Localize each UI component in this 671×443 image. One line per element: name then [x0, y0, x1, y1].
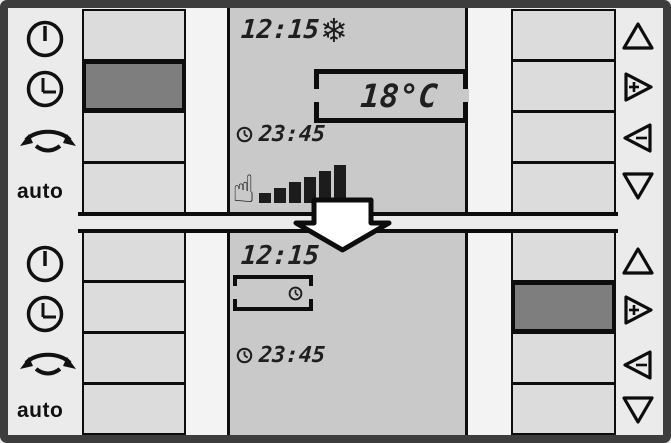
top-display: 12:15 ❄ 18°C 23:45 ☝	[227, 8, 468, 214]
power-icon	[24, 243, 66, 285]
status-box-notch-left	[231, 286, 238, 299]
auto-label: auto	[17, 180, 63, 204]
triangle-plus-icon[interactable]	[620, 294, 656, 326]
bottom-right-button-down[interactable]	[511, 383, 616, 435]
triangle-plus-icon[interactable]	[620, 71, 656, 103]
program-clock-icon	[236, 347, 253, 364]
triangle-minus-icon[interactable]	[620, 122, 656, 154]
power-icon	[24, 18, 66, 60]
bottom-left-button-auto[interactable]	[82, 383, 186, 435]
top-right-button-minus[interactable]	[511, 111, 616, 163]
bottom-right-gap	[468, 229, 511, 436]
top-right-button-plus[interactable]	[511, 60, 616, 112]
top-right-button-down[interactable]	[511, 162, 616, 214]
triangle-down-icon[interactable]	[620, 171, 656, 201]
top-left-button-clock-selected[interactable]	[82, 60, 186, 112]
top-right-gap	[468, 8, 511, 214]
triangle-up-icon[interactable]	[620, 21, 656, 51]
manual-hand-icon: ☝	[232, 170, 255, 208]
status-box-notch-right	[308, 286, 315, 299]
triangle-up-icon[interactable]	[620, 246, 656, 276]
bottom-left-button-power[interactable]	[82, 230, 186, 282]
top-program-time: 23:45	[258, 122, 326, 147]
triangle-minus-icon[interactable]	[620, 349, 656, 381]
top-right-button-up[interactable]	[511, 9, 616, 61]
bottom-left-gap	[186, 229, 227, 436]
top-left-button-swing[interactable]	[82, 111, 186, 163]
bottom-program-time: 23:45	[258, 343, 326, 368]
top-display-time: 12:15	[240, 15, 320, 45]
clock-icon	[24, 68, 66, 110]
bottom-display: 12:15 23:45	[227, 229, 468, 436]
auto-label: auto	[17, 399, 63, 423]
status-clock-icon	[288, 286, 303, 301]
swing-icon	[16, 347, 80, 381]
bottom-program-row: 23:45	[236, 343, 325, 368]
program-clock-icon	[236, 126, 253, 143]
top-left-button-auto[interactable]	[82, 162, 186, 214]
top-left-gap	[186, 8, 227, 214]
bottom-right-button-minus[interactable]	[511, 332, 616, 384]
status-box	[233, 275, 313, 311]
top-left-button-power[interactable]	[82, 9, 186, 61]
step-arrow-icon	[290, 197, 395, 255]
top-program-row: 23:45	[236, 122, 325, 147]
bottom-left-button-clock[interactable]	[82, 281, 186, 333]
bottom-right-button-plus-selected[interactable]	[511, 281, 616, 333]
bottom-left-button-swing[interactable]	[82, 332, 186, 384]
bottom-right-button-up[interactable]	[511, 230, 616, 282]
triangle-down-icon[interactable]	[620, 395, 656, 425]
clock-icon	[24, 293, 66, 335]
thermostat-programming-diagram: auto 12:15 ❄ 18°C 23:45 ☝	[0, 0, 671, 443]
snowflake-icon: ❄	[320, 14, 348, 47]
swing-icon	[16, 124, 80, 158]
setpoint-box: 18°C	[314, 69, 468, 123]
setpoint-value: 18°C	[318, 77, 465, 115]
